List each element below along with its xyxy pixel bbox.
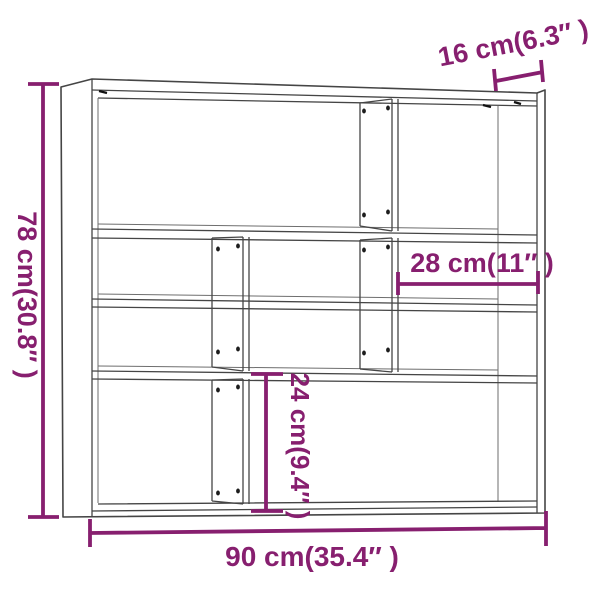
top-board — [92, 90, 537, 106]
shelf-back-edge — [98, 294, 498, 299]
product-dimension-diagram: 78 cm(30.8″ ) 16 cm(6.3″ ) 28 cm(11″ ) 2… — [0, 0, 600, 600]
depth-dimension-label: 16 cm(6.3″ ) — [436, 14, 591, 73]
shelf-front-edge — [92, 229, 537, 243]
depth-dimension-line — [494, 60, 543, 91]
height-dimension-label: 78 cm(30.8″ ) — [12, 211, 42, 379]
wall-shelf-drawing: 78 cm(30.8″ ) 16 cm(6.3″ ) 28 cm(11″ ) 2… — [0, 0, 600, 600]
shelf-middle — [92, 294, 537, 312]
shelf-front-edge — [92, 299, 537, 312]
shelf-top — [92, 224, 537, 243]
shelf-back-edge — [98, 224, 498, 229]
shelf-height-dimension-label: 24 cm(9.4″ ) — [285, 373, 315, 520]
divider-bottom-row — [212, 379, 249, 504]
shelf-width-dimension-label: 28 cm(11″ ) — [410, 248, 554, 278]
shelf-back-edge — [98, 366, 498, 370]
divider-top-row — [360, 99, 398, 231]
shelf-height-dimension-line — [251, 374, 283, 511]
width-dimension-label: 90 cm(35.4″ ) — [225, 541, 399, 572]
